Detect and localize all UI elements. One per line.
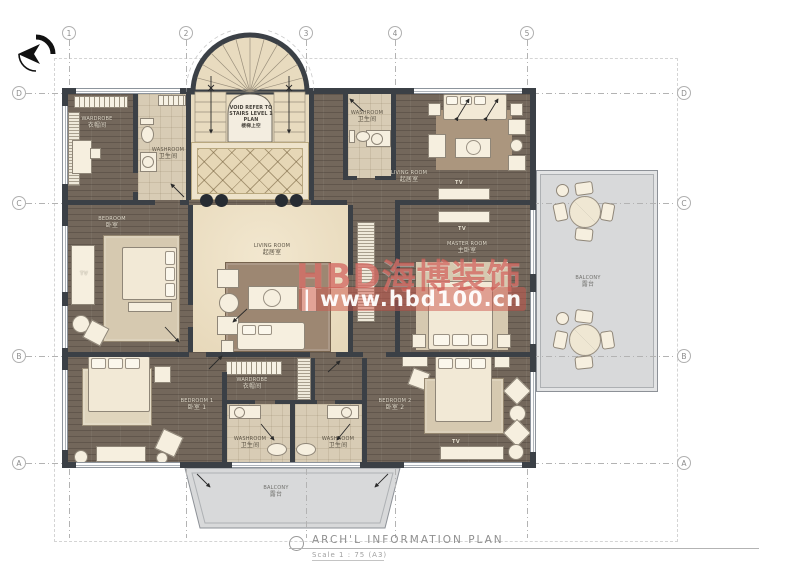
column — [290, 194, 303, 207]
room-label-balcony-bottom: BALCONY 露台 — [248, 485, 304, 498]
desk-chair — [90, 148, 101, 159]
grid-bubble-row-a-left: A — [12, 456, 26, 470]
side-table — [510, 103, 523, 116]
nightstand — [412, 334, 426, 348]
stair-void-note: VOID REFER TO STAIRS LEVEL 1 PLAN 楼梯上空 — [225, 106, 277, 130]
patio-chair — [574, 309, 593, 324]
toilet-bowl — [356, 131, 370, 142]
balcony-door — [530, 292, 536, 344]
pillow — [474, 96, 486, 105]
window — [76, 88, 180, 94]
bed-bench — [128, 302, 172, 312]
room-label-cn: 衣帽间 — [224, 384, 280, 391]
pillow — [446, 96, 458, 105]
patio-chair — [600, 330, 616, 350]
room-label-cn: 露台 — [560, 282, 616, 289]
patio-round-table — [569, 324, 601, 356]
room-label-washroom-bottom-left: WASHROOM 卫生间 — [222, 436, 278, 449]
bench — [154, 366, 171, 383]
room-label-cn: 露台 — [248, 492, 304, 499]
room-label-cn: 卧室 1 — [169, 405, 225, 412]
column — [275, 194, 288, 207]
wall — [62, 200, 155, 205]
room-label-balcony-right: BALCONY 露台 — [560, 275, 616, 288]
sink-basin — [371, 133, 383, 145]
pillow — [471, 358, 486, 369]
desk — [96, 446, 146, 462]
window — [530, 372, 536, 452]
grid-bubble-col-5: 5 — [520, 26, 534, 40]
patio-round-table — [569, 196, 601, 228]
wall — [206, 352, 310, 357]
room-label-living-top-right: LIVING ROOM 起居室 — [381, 170, 437, 183]
tv-label-master-room: TV — [458, 226, 466, 232]
table-decor — [466, 140, 481, 155]
wall — [188, 327, 193, 352]
grid-bubble-col-1: 1 — [62, 26, 76, 40]
coffee-table — [428, 134, 446, 158]
floor-plan-canvas: 1 2 3 4 5 D C B A D C B A — [0, 0, 800, 566]
toilet-tank — [349, 130, 355, 143]
toilet-tank — [140, 118, 154, 125]
grid-bubble-row-a-right: A — [677, 456, 691, 470]
pillow — [91, 358, 106, 369]
pillow — [438, 358, 453, 369]
window — [404, 462, 522, 468]
room-label-bedroom-2: BEDROOM 2 卧室 2 — [367, 398, 423, 411]
scale-underline — [312, 560, 384, 561]
tv-cabinet — [438, 188, 490, 200]
tv-label-bedroom-left: TV — [80, 271, 88, 277]
grid-bubble-row-c-left: C — [12, 196, 26, 210]
window — [62, 106, 68, 184]
wall — [386, 352, 536, 357]
balcony-bottom-floor — [180, 466, 404, 532]
room-label-cn: 卧室 2 — [367, 405, 423, 412]
wall — [336, 352, 363, 357]
room-label-cn: 卫生间 — [222, 443, 278, 450]
patio-chair — [552, 330, 568, 350]
pillow — [433, 334, 450, 346]
wall — [188, 205, 193, 305]
balcony-door — [232, 462, 360, 468]
patio-chair — [574, 355, 593, 370]
column — [215, 194, 228, 207]
wall — [343, 176, 357, 180]
wall — [311, 358, 315, 402]
plan-scale: Scale 1 : 75 (A3) — [312, 551, 387, 559]
tv-label-bedroom-2: TV — [452, 439, 460, 445]
sofa-cushion — [242, 325, 256, 335]
round-side-table — [510, 139, 523, 152]
tv-label-living-top-right: TV — [455, 180, 463, 186]
curved-staircase — [186, 30, 314, 148]
wall — [62, 352, 189, 357]
pillow — [455, 358, 470, 369]
room-label-cn: 卧室 — [84, 223, 140, 230]
sofa-cushion — [258, 325, 272, 335]
wall — [222, 400, 255, 404]
wall — [311, 200, 347, 205]
grid-bubble-col-4: 4 — [388, 26, 402, 40]
patio-chair — [574, 227, 593, 242]
armchair — [217, 316, 239, 335]
patio-chair — [552, 202, 568, 222]
sink-basin — [234, 407, 245, 418]
pillow — [165, 251, 175, 265]
window — [76, 462, 180, 468]
room-label-cn: 卫生间 — [140, 154, 196, 161]
corner-table — [494, 356, 510, 368]
wall — [133, 88, 138, 173]
pillow — [165, 267, 175, 281]
patio-dining-set — [554, 310, 616, 370]
window — [62, 370, 68, 450]
room-label-cn: 卫生间 — [310, 443, 366, 450]
wall — [391, 88, 396, 180]
room-label-cn: 衣帽间 — [69, 123, 125, 130]
room-label-washroom-top-left: WASHROOM 卫生间 — [140, 147, 196, 160]
grid-bubble-row-b-left: B — [12, 349, 26, 363]
plan-title: ARCH'L INFORMATION PLAN — [312, 534, 504, 546]
patio-chair — [600, 202, 616, 222]
pillow — [452, 334, 469, 346]
tv-cabinet — [438, 211, 490, 223]
column — [200, 194, 213, 207]
wall — [275, 400, 317, 404]
wall — [343, 88, 348, 180]
stair-note-line3: 楼梯上空 — [225, 124, 277, 130]
patio-dining-set — [554, 182, 616, 242]
wall — [335, 400, 364, 404]
patio-chair — [574, 181, 594, 196]
wardrobe-cabinet — [297, 358, 311, 400]
room-label-cn: 卫生间 — [339, 117, 395, 124]
grid-bubble-row-d-right: D — [677, 86, 691, 100]
grid-bubble-row-b-right: B — [677, 349, 691, 363]
room-label-bedroom-1: BEDROOM 1 卧室 1 — [169, 398, 225, 411]
closet-shelf — [74, 96, 128, 108]
pillow — [165, 283, 175, 297]
pillow — [471, 334, 488, 346]
wall — [290, 403, 295, 462]
toilet-bowl — [141, 126, 154, 143]
room-label-wardrobe-bottom: WARDROBE 衣帽间 — [224, 377, 280, 390]
balcony-bottom-outline — [185, 468, 400, 528]
wardrobe-shelf — [226, 361, 282, 375]
side-table — [428, 103, 441, 116]
watermark-url: | www.hbd100.cn — [299, 287, 526, 311]
window — [414, 88, 522, 94]
pillow — [460, 96, 472, 105]
window — [62, 226, 68, 292]
bath-shelf — [158, 95, 186, 106]
sink-basin — [341, 407, 352, 418]
patio-chair — [556, 312, 569, 325]
armchair — [508, 155, 526, 171]
room-label-washroom-bottom-right: WASHROOM 卫生间 — [310, 436, 366, 449]
compass-north-icon — [16, 34, 56, 74]
tv-console — [440, 446, 504, 460]
room-label-cn: 起居室 — [381, 177, 437, 184]
pillow — [108, 358, 123, 369]
armchair — [217, 269, 239, 288]
wall — [133, 192, 138, 200]
round-side-table — [219, 293, 239, 313]
window — [62, 306, 68, 348]
armchair — [508, 119, 526, 135]
wall — [395, 200, 536, 205]
title-underline — [289, 548, 759, 549]
foyer-diamond-floor — [197, 148, 303, 194]
patio-chair — [556, 184, 569, 197]
balcony-door — [530, 210, 536, 274]
stair-note-line2: STAIRS LEVEL 1 PLAN — [225, 112, 277, 124]
table-decor — [263, 289, 281, 307]
round-chair — [508, 444, 524, 460]
pillow — [125, 358, 140, 369]
grid-bubble-row-d-left: D — [12, 86, 26, 100]
desk — [72, 140, 92, 174]
grid-bubble-row-c-right: C — [677, 196, 691, 210]
room-label-cn: 起居室 — [244, 250, 300, 257]
room-label-living-center: LIVING ROOM 起居室 — [244, 243, 300, 256]
cabinet — [402, 356, 428, 367]
room-label-washroom-top-right: WASHROOM 卫生间 — [339, 110, 395, 123]
nightstand — [497, 334, 511, 348]
room-label-wardrobe-top-left: WARDROBE 衣帽间 — [69, 116, 125, 129]
room-label-bedroom-left: BEDROOM 卧室 — [84, 216, 140, 229]
